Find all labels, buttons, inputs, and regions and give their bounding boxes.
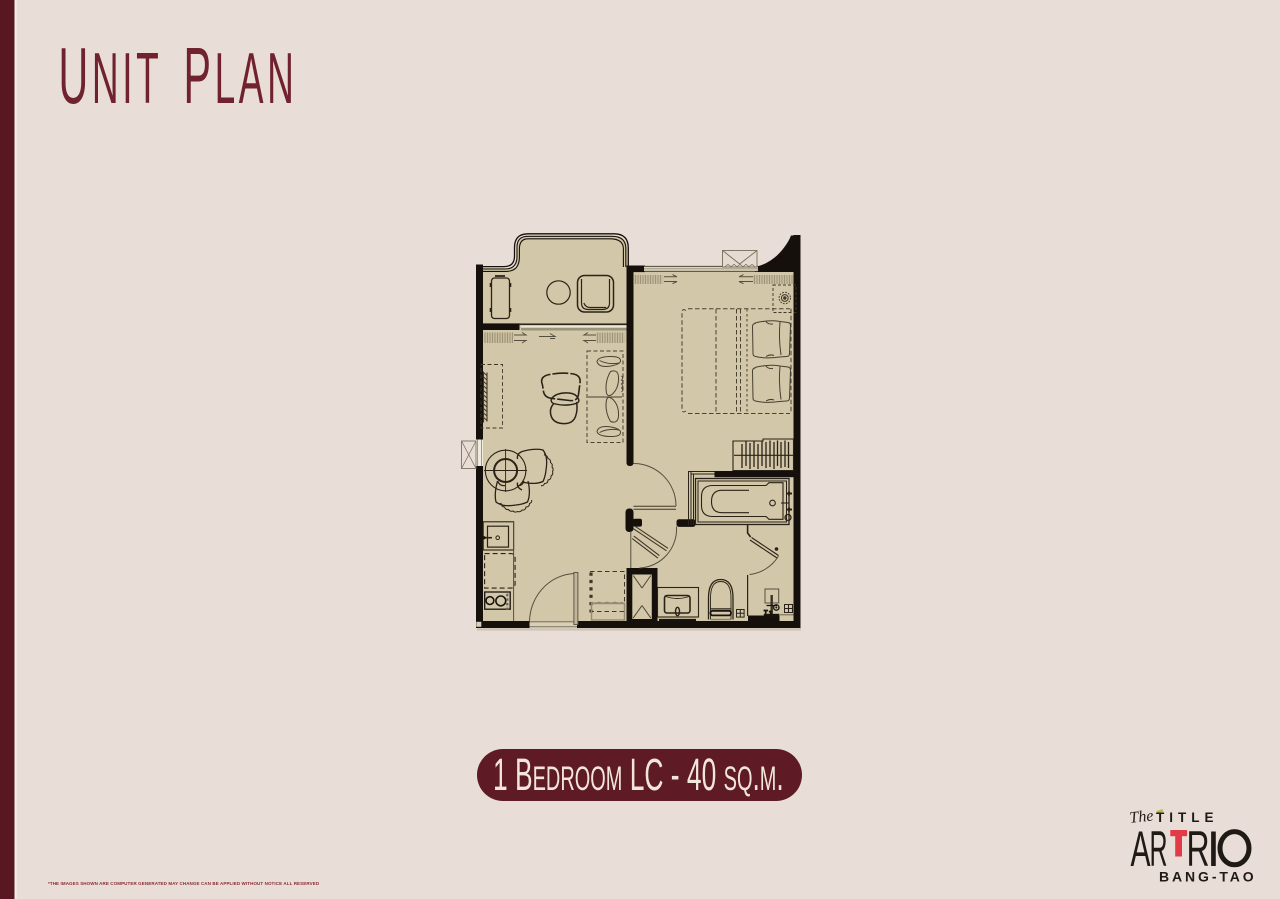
svg-text:BANG-TAO: BANG-TAO <box>1159 869 1257 885</box>
svg-text:A: A <box>1131 821 1151 877</box>
svg-text:UNIT PLAN: UNIT PLAN <box>59 31 298 120</box>
svg-text:*THE IMAGES SHOWN ARE COMPUTER: *THE IMAGES SHOWN ARE COMPUTER GENERATED… <box>48 881 320 886</box>
